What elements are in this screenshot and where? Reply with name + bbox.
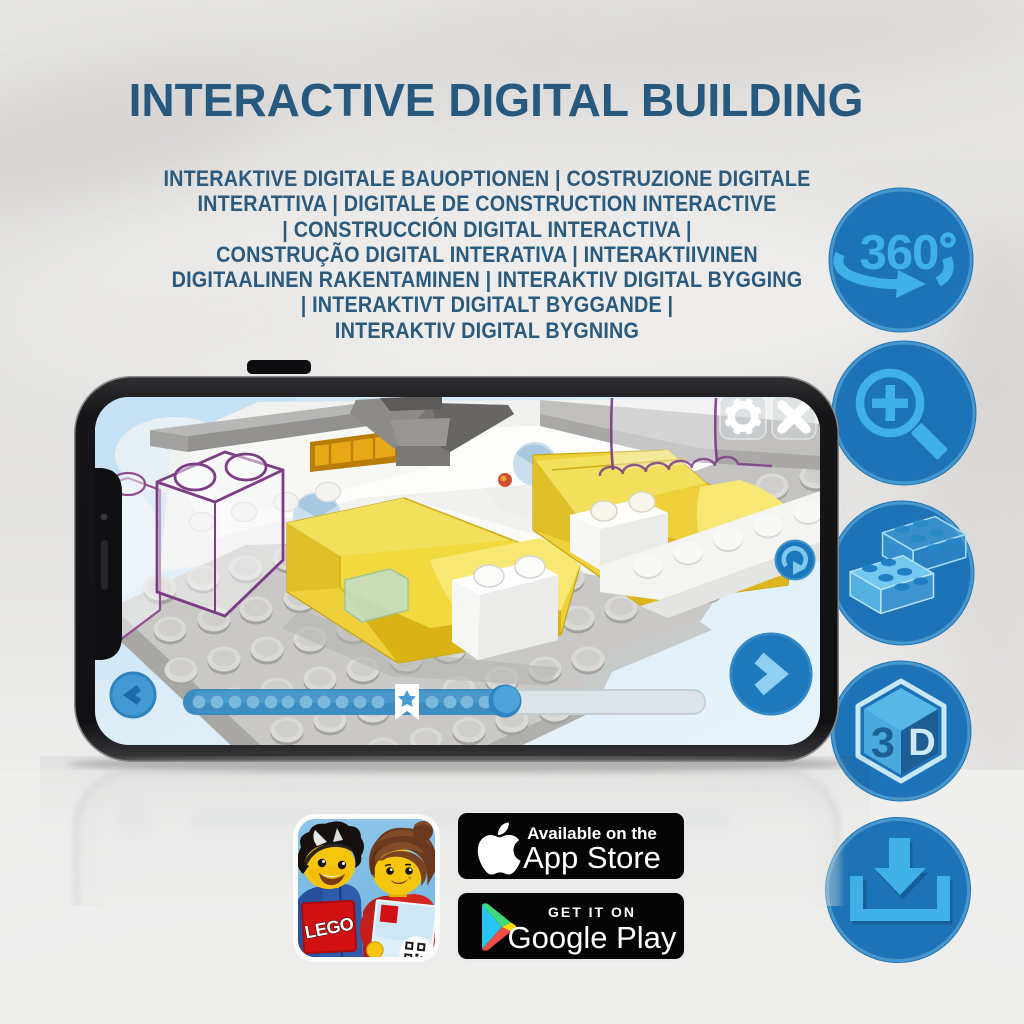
svg-text:Google Play: Google Play (508, 920, 677, 955)
svg-text:D: D (908, 722, 935, 764)
svg-text:App Store: App Store (523, 840, 661, 875)
svg-text:3: 3 (871, 719, 895, 767)
svg-text:GET IT ON: GET IT ON (548, 904, 636, 920)
